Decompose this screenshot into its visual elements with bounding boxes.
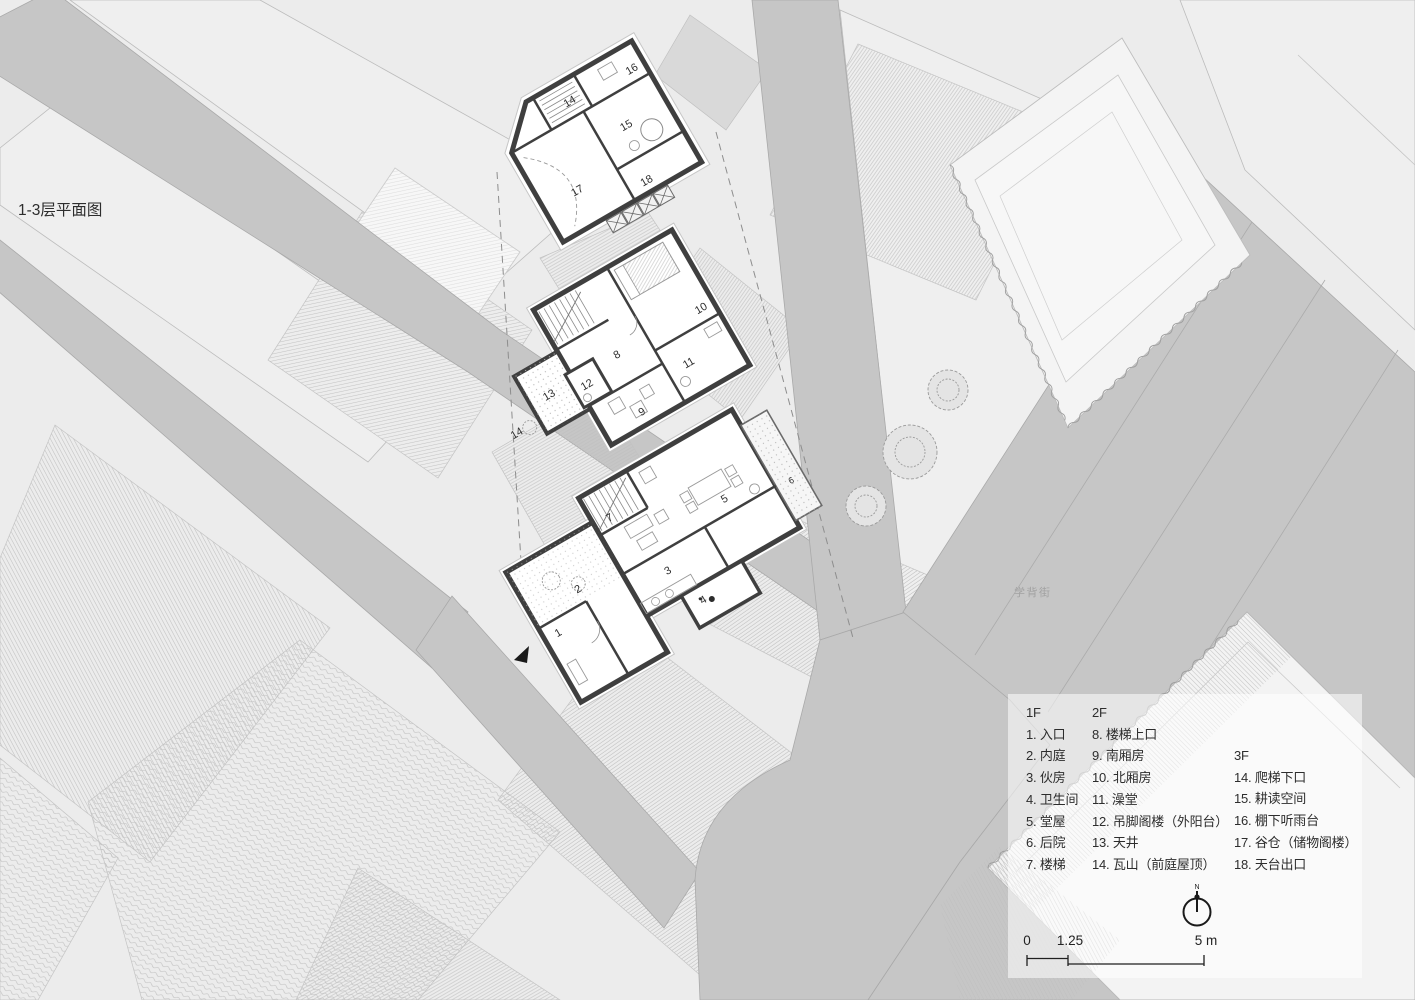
scale-end: 5 m [1195, 933, 1218, 948]
north-compass: N [1172, 882, 1222, 938]
legend-column-2f: 2F 8. 楼梯上口 9. 南厢房 10. 北厢房 11. 澡堂 12. 吊脚阁… [1092, 702, 1228, 876]
street-label: 学背街 [1014, 585, 1052, 599]
scale-bar: 0 1.25 5 m [1018, 931, 1228, 975]
legend-item: 4. 卫生间 [1026, 789, 1078, 811]
legend-item: 13. 天井 [1092, 832, 1228, 854]
tree-symbol [883, 425, 937, 479]
entrance-arrow-marker [514, 646, 529, 663]
legend-item: 18. 天台出口 [1234, 854, 1357, 876]
tree-symbol [846, 486, 886, 526]
site-plan-page: 学背街 [0, 0, 1415, 1000]
legend-header: 3F [1234, 745, 1357, 767]
scale-start: 0 [1023, 933, 1031, 948]
legend-item: 14. 爬梯下口 [1234, 767, 1357, 789]
legend-header: 2F [1092, 702, 1228, 724]
legend-item: 3. 伙房 [1026, 767, 1078, 789]
legend-item: 6. 后院 [1026, 832, 1078, 854]
legend-item: 2. 内庭 [1026, 745, 1078, 767]
legend-column-1f: 1F 1. 入口 2. 内庭 3. 伙房 4. 卫生间 5. 堂屋 6. 后院 … [1026, 702, 1078, 876]
legend-item: 10. 北厢房 [1092, 767, 1228, 789]
legend-item: 5. 堂屋 [1026, 811, 1078, 833]
legend-column-3f: 3F 14. 爬梯下口 15. 耕读空间 16. 棚下听雨台 17. 谷仓（储物… [1234, 745, 1357, 875]
legend-item: 7. 楼梯 [1026, 854, 1078, 876]
legend-item: 1. 入口 [1026, 724, 1078, 746]
legend-item: 16. 棚下听雨台 [1234, 810, 1357, 832]
legend-item: 8. 楼梯上口 [1092, 724, 1228, 746]
north-label: N [1194, 884, 1199, 891]
drawing-caption: 1-3层平面图 [18, 198, 102, 220]
legend-item: 14. 瓦山（前庭屋顶） [1092, 854, 1228, 876]
legend-item: 17. 谷仓（储物阁楼） [1234, 832, 1357, 854]
tree-symbol [928, 370, 968, 410]
scale-mid: 1.25 [1057, 933, 1083, 948]
legend-item: 9. 南厢房 [1092, 745, 1228, 767]
legend-header: 1F [1026, 702, 1078, 724]
legend-item: 12. 吊脚阁楼（外阳台） [1092, 811, 1228, 833]
legend-item: 11. 澡堂 [1092, 789, 1228, 811]
legend-item: 15. 耕读空间 [1234, 788, 1357, 810]
